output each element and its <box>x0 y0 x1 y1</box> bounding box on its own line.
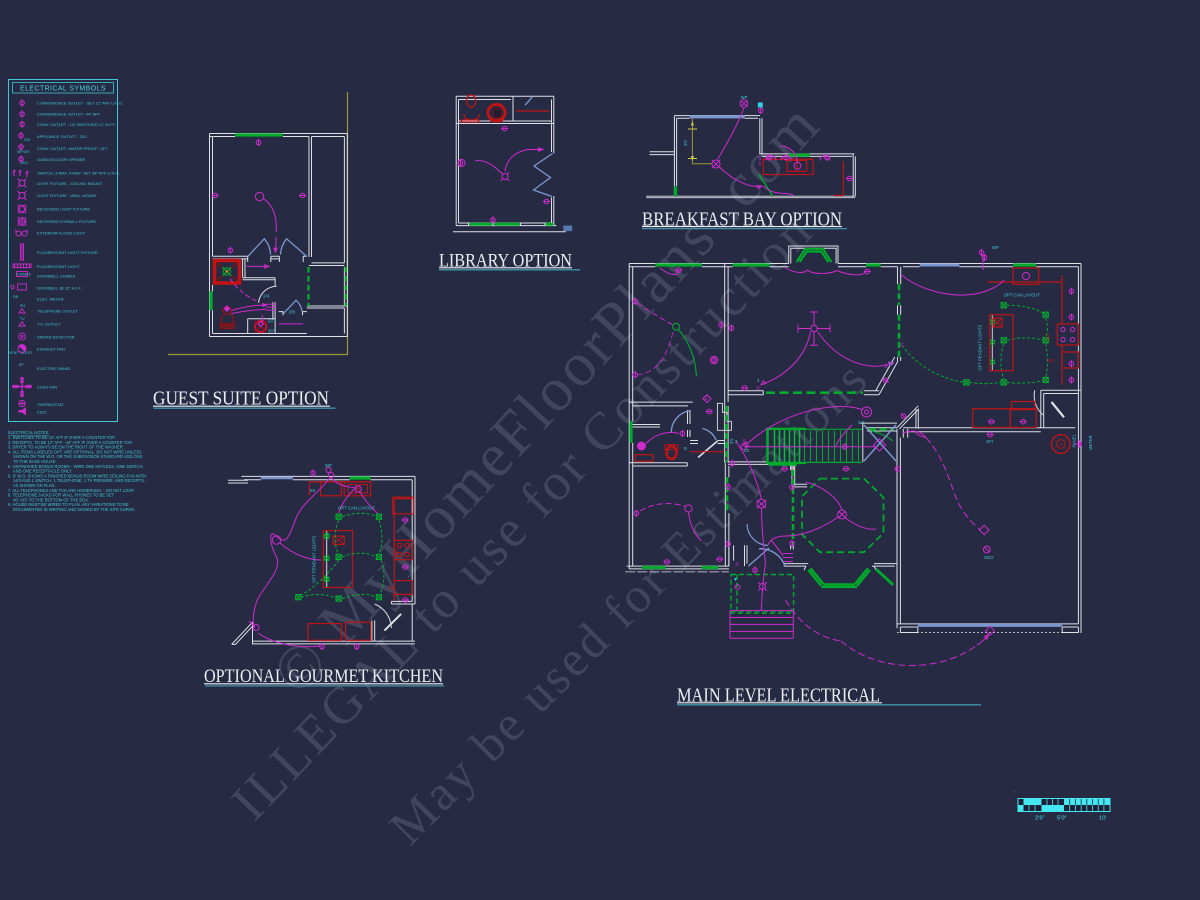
svg-text:APPLIANCE OUTLET - 220: APPLIANCE OUTLET - 220 <box>37 134 87 139</box>
svg-text:METER: METER <box>1088 435 1093 450</box>
svg-text:CONV. OUTLET - 1/2 SWITCHED 12: CONV. OUTLET - 1/2 SWITCHED 12" A.F.F. <box>37 122 116 127</box>
svg-text:ELEC. METER: ELEC. METER <box>37 297 64 302</box>
svg-text:EXHAUST FAN: EXHAUST FAN <box>37 347 65 352</box>
svg-text:TV: TV <box>888 362 894 367</box>
svg-text:GDO: GDO <box>984 555 994 560</box>
svg-text:B: B <box>684 446 687 451</box>
svg-text:WP: WP <box>992 245 999 250</box>
svg-text:CONVENIENCE OUTLET -44" AFF: CONVENIENCE OUTLET -44" AFF <box>37 112 100 117</box>
svg-text:THERMOSTAT: THERMOSTAT <box>37 402 65 407</box>
svg-text:3'6: 3'6 <box>729 438 734 444</box>
svg-text:CHIMES: CHIMES <box>17 273 32 277</box>
svg-text:10': 10' <box>1099 816 1107 822</box>
svg-text:WP: WP <box>325 463 332 468</box>
svg-text:RECESSED LIGHT FIXTURE: RECESSED LIGHT FIXTURE <box>37 207 90 212</box>
svg-text:OPT PENDANT LIGHTS: OPT PENDANT LIGHTS <box>312 536 317 583</box>
svg-text:LIBRARY OPTION: LIBRARY OPTION <box>439 251 572 272</box>
svg-text:CONVENIENCE OUTLET - SET 12" A: CONVENIENCE OUTLET - SET 12" AFF U.N.O. <box>37 101 123 106</box>
svg-text:EXTERIOR FLOOD LIGHT: EXTERIOR FLOOD LIGHT <box>37 231 86 236</box>
svg-text:C022: C022 <box>37 409 47 414</box>
svg-text:GFI: GFI <box>986 439 993 444</box>
svg-text:GFI: GFI <box>268 319 276 324</box>
svg-text:S: S <box>742 439 746 445</box>
svg-text:220: 220 <box>24 138 30 142</box>
svg-text:S: S <box>900 343 904 349</box>
svg-text:DOCUMENTED IN WRITING AND SIGN: DOCUMENTED IN WRITING AND SIGNED BY THE … <box>13 507 135 512</box>
svg-text:WP: WP <box>741 95 748 100</box>
svg-text:2'6": 2'6" <box>1035 816 1045 822</box>
svg-text:M: M <box>1059 442 1062 447</box>
svg-text:T.V. OUTLET: T.V. OUTLET <box>37 322 61 327</box>
svg-text:FLUORESCENT LIGHT FIXTURE: FLUORESCENT LIGHT FIXTURE <box>37 250 98 255</box>
svg-text:TV: TV <box>20 317 25 321</box>
svg-text:FLUORESCENT LIGHT: FLUORESCENT LIGHT <box>37 264 80 269</box>
svg-text:GARAGE DOOR OPENER: GARAGE DOOR OPENER <box>37 157 85 162</box>
svg-text:5S: 5S <box>310 488 315 493</box>
svg-text:OPT CAN LAYOUT: OPT CAN LAYOUT <box>338 506 375 511</box>
svg-text:LIGHT FIXTURE - CEILING MOUNT: LIGHT FIXTURE - CEILING MOUNT <box>37 181 103 186</box>
svg-text:OPT CAN LAYOUT: OPT CAN LAYOUT <box>1004 293 1041 298</box>
svg-text:220: 220 <box>388 585 396 590</box>
svg-text:220: 220 <box>394 548 399 556</box>
svg-text:S: S <box>756 386 760 392</box>
svg-text:VENT TO EXT: VENT TO EXT <box>9 351 33 355</box>
svg-text:EP: EP <box>19 363 24 367</box>
svg-text:S: S <box>704 396 708 402</box>
svg-text:CONV. OUTLET- WATER PROOF- GFI: CONV. OUTLET- WATER PROOF- GFI <box>37 146 107 151</box>
svg-text:220: 220 <box>1047 358 1055 363</box>
svg-text:RECESSED EYEBALL FIXTURE: RECESSED EYEBALL FIXTURE <box>37 219 96 224</box>
svg-text:36": 36" <box>268 329 275 334</box>
svg-text:PH: PH <box>20 304 25 308</box>
svg-text:S: S <box>735 562 739 568</box>
svg-text:2/4: 2/4 <box>263 294 270 299</box>
svg-text:2/8: 2/8 <box>289 310 296 315</box>
svg-text:DOORBELL @ 32" A.F.F.: DOORBELL @ 32" A.F.F. <box>37 286 82 291</box>
svg-text:DB: DB <box>13 295 19 299</box>
svg-text:TELEPHONE OUTLET: TELEPHONE OUTLET <box>37 309 79 314</box>
svg-text:PANEL: PANEL <box>1072 433 1077 447</box>
svg-text:5'0": 5'0" <box>1057 816 1067 822</box>
svg-text:WP/GFI: WP/GFI <box>17 150 30 154</box>
svg-text:▼: ▼ <box>733 577 738 583</box>
svg-text:SWITCH, 3-WAY, 4-WAY- SET 38": SWITCH, 3-WAY, 4-WAY- SET 38" AFF U.N.O. <box>37 170 120 175</box>
svg-text:S3: S3 <box>744 448 750 453</box>
svg-text:220: 220 <box>1046 334 1051 342</box>
svg-text:© MyHomeFloorPlans .com: © MyHomeFloorPlans .com <box>259 90 833 708</box>
svg-text:3'0: 3'0 <box>683 140 688 146</box>
svg-text:": " <box>1014 790 1016 795</box>
svg-text:ELECTRIC PANEL: ELECTRIC PANEL <box>37 366 71 371</box>
svg-text:OPT PENDANT LIGHTS: OPT PENDANT LIGHTS <box>978 325 983 371</box>
svg-text:SMOKE DETECTOR: SMOKE DETECTOR <box>37 334 75 339</box>
svg-text:3: 3 <box>757 378 760 383</box>
svg-text:ELECTRICAL SYMBOLS: ELECTRICAL SYMBOLS <box>20 86 106 93</box>
svg-text:LIGHT FIXTURE - WALL MOUNT: LIGHT FIXTURE - WALL MOUNT <box>37 193 97 198</box>
svg-text:CLNG FAN: CLNG FAN <box>37 384 57 389</box>
svg-text:DOORBELL CHIMES: DOORBELL CHIMES <box>37 274 76 279</box>
svg-text:3 P: 3 P <box>858 420 864 425</box>
